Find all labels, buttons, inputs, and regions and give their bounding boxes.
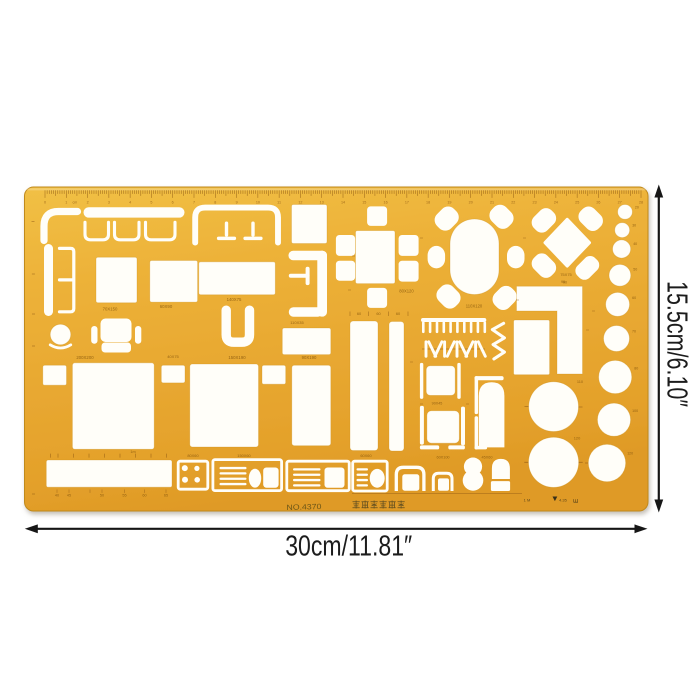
svg-text:200X200: 200X200 [76,355,94,360]
svg-text:20: 20 [635,206,639,210]
svg-text:50: 50 [633,267,637,271]
svg-text:20: 20 [469,200,473,204]
svg-text:120: 120 [627,452,633,456]
svg-text:7: 7 [193,200,195,204]
svg-text:45X60: 45X60 [482,456,493,460]
svg-text:110X35: 110X35 [290,320,304,325]
svg-text:60X60: 60X60 [360,453,372,458]
svg-text:3: 3 [108,200,110,204]
svg-text:17: 17 [405,200,409,204]
svg-text:70: 70 [632,330,636,334]
svg-text:15.5cm/6.10″: 15.5cm/6.10″ [661,281,693,407]
svg-text:11: 11 [277,200,281,204]
svg-text:70X150: 70X150 [103,307,118,312]
svg-text:60: 60 [632,296,636,300]
svg-text:60X100: 60X100 [436,456,449,460]
svg-text:45: 45 [67,494,71,498]
svg-text:50: 50 [100,494,104,498]
svg-text:90: 90 [561,280,565,284]
svg-text:150X190: 150X190 [228,355,246,360]
svg-text:40: 40 [55,494,59,498]
svg-text:80: 80 [634,367,638,371]
svg-text:E: E [573,498,580,503]
svg-text:55: 55 [122,494,126,498]
svg-text:1: 1 [65,200,67,204]
svg-text:18: 18 [426,200,430,204]
svg-text:100: 100 [632,409,638,413]
svg-text:10: 10 [256,200,260,204]
svg-text:65: 65 [164,494,168,498]
svg-text:1 M: 1 M [524,498,531,503]
svg-text:1m: 1m [130,450,135,454]
svg-text:80X60: 80X60 [187,453,199,458]
svg-text:5: 5 [150,200,152,204]
svg-text:16: 16 [384,200,388,204]
svg-text:NO.4370: NO.4370 [286,502,321,512]
svg-text:27: 27 [618,200,622,204]
svg-text:4: 4 [129,200,131,204]
svg-text:120: 120 [574,436,581,441]
svg-text:15: 15 [362,200,366,204]
svg-text:cm: cm [73,200,78,204]
svg-text:13: 13 [320,200,324,204]
svg-text:22: 22 [511,200,515,204]
svg-text:60: 60 [142,494,146,498]
svg-text:24: 24 [554,200,558,204]
svg-text:75X75: 75X75 [560,272,572,277]
svg-text:12: 12 [298,200,302,204]
svg-text:110X120: 110X120 [466,303,483,308]
svg-text:23: 23 [533,200,537,204]
svg-text:40X75: 40X75 [167,354,179,359]
svg-text:30cm/11.81″: 30cm/11.81″ [285,531,412,563]
svg-text:110: 110 [577,379,584,384]
svg-text:25: 25 [575,200,579,204]
svg-text:14: 14 [341,200,345,204]
svg-text:19: 19 [447,200,451,204]
svg-text:4.35: 4.35 [559,498,568,503]
svg-text:6: 6 [172,200,174,204]
svg-text:80X120: 80X120 [399,288,414,293]
svg-text:90X45: 90X45 [432,401,443,405]
svg-text:150X60: 150X60 [237,453,251,458]
svg-text:26: 26 [596,200,600,204]
svg-text:21: 21 [490,200,494,204]
svg-text:90X190: 90X190 [302,355,317,360]
svg-text:30: 30 [632,224,636,228]
svg-text:8: 8 [214,200,216,204]
svg-text:40: 40 [633,242,637,246]
svg-text:140X75: 140X75 [227,297,242,302]
svg-text:9: 9 [236,200,238,204]
svg-text:0: 0 [44,200,46,204]
svg-text:60X90: 60X90 [160,304,173,309]
svg-text:28: 28 [639,200,643,204]
svg-text:2: 2 [87,200,89,204]
